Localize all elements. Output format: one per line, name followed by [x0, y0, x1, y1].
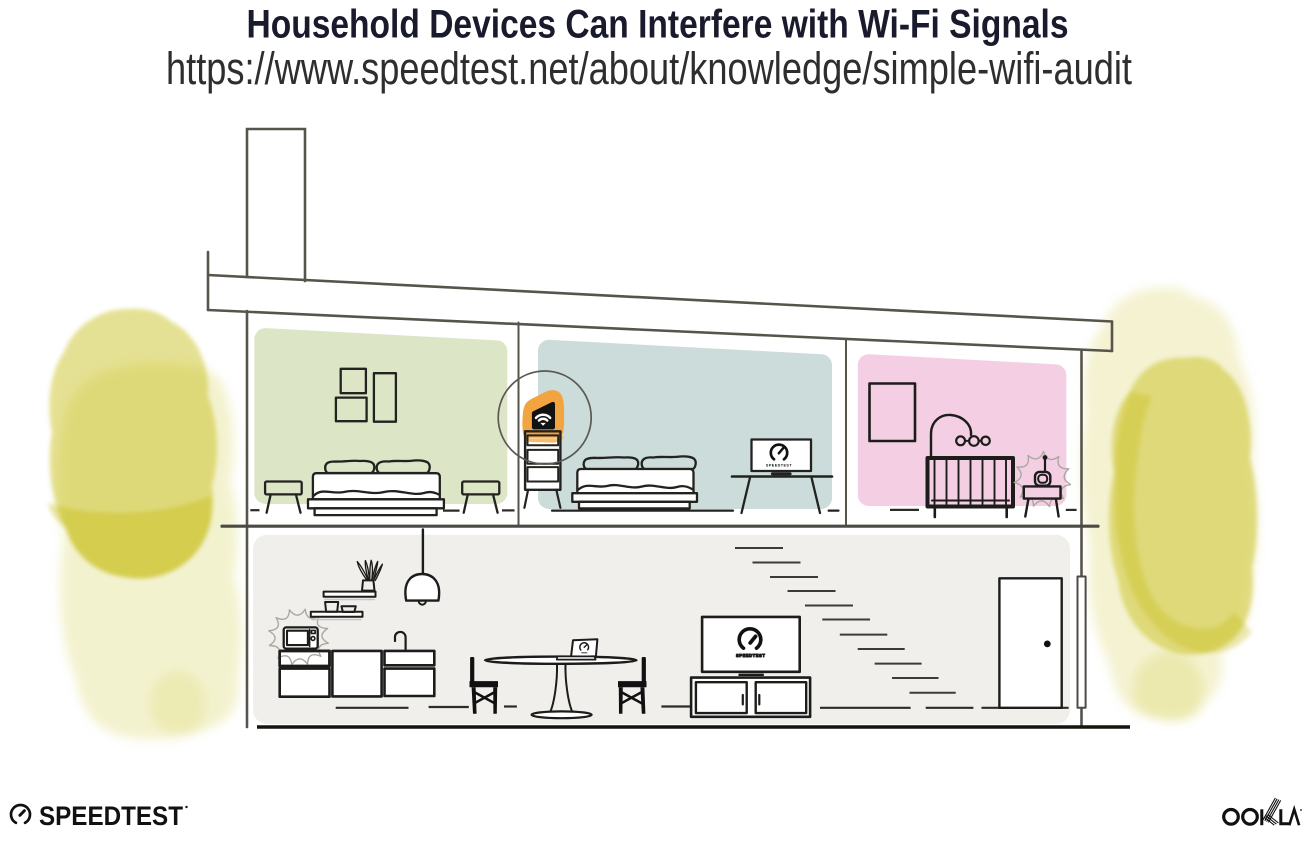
svg-text:SPEEDTEST: SPEEDTEST [736, 653, 765, 658]
svg-text:SPEEDTEST: SPEEDTEST [39, 801, 183, 831]
svg-text:https://www.speedtest.net/abou: https://www.speedtest.net/about/knowledg… [166, 43, 1132, 94]
svg-text:Household Devices Can Interfer: Household Devices Can Interfere with Wi-… [247, 3, 1069, 47]
svg-text:SPEEDTEST: SPEEDTEST [766, 464, 792, 468]
